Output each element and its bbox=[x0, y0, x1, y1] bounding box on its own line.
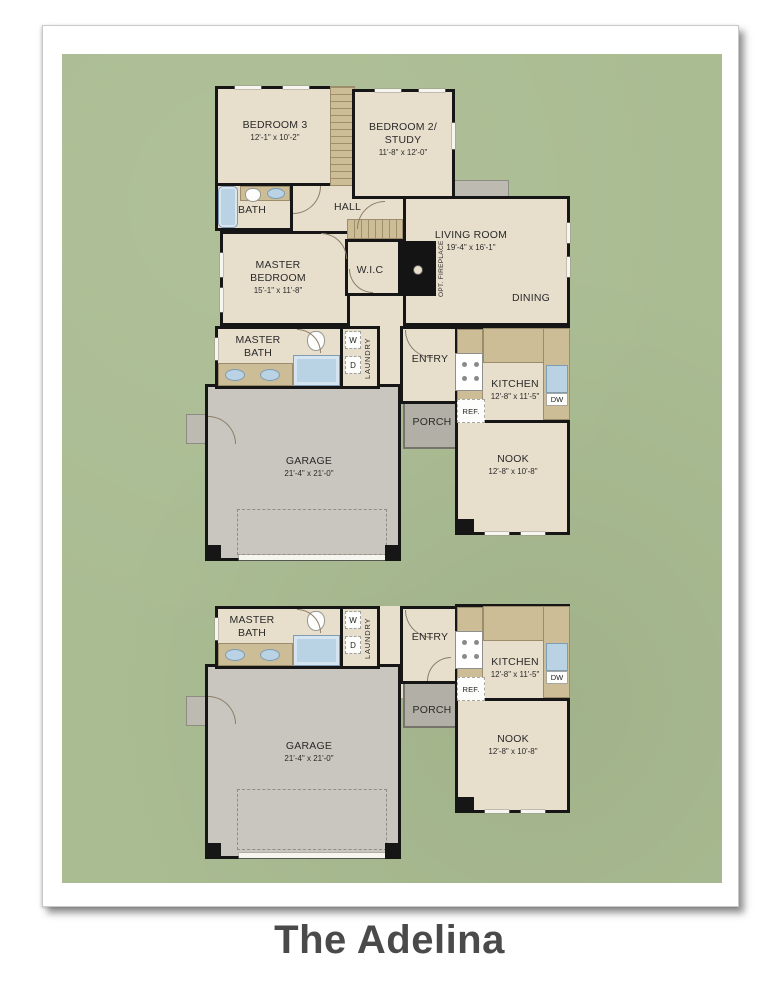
bath-name: BATH bbox=[227, 204, 277, 217]
dryer-icon: D bbox=[345, 636, 361, 654]
side-stoop-2 bbox=[186, 696, 207, 726]
nook-label: NOOK 12'-8" x 10'-8" bbox=[463, 453, 563, 477]
toilet-icon bbox=[245, 188, 261, 202]
hall-label: HALL bbox=[320, 201, 375, 214]
window bbox=[419, 89, 445, 92]
wall-corner bbox=[205, 545, 221, 561]
bedroom2-name2: STUDY bbox=[353, 134, 453, 147]
shower-icon bbox=[293, 355, 340, 386]
site-background: DW REF. W D bbox=[62, 54, 722, 883]
kitchen-name: KITCHEN bbox=[465, 378, 565, 391]
bedroom2-dims: 11'-8" x 12'-0" bbox=[353, 148, 453, 158]
porch-label-2: PORCH bbox=[405, 704, 459, 717]
kitchen-name: KITCHEN bbox=[465, 656, 565, 669]
fireplace-label: OPT. FIREPLACE bbox=[438, 233, 445, 305]
window bbox=[485, 810, 509, 813]
sink-icon bbox=[260, 649, 280, 661]
refrigerator-icon: REF. bbox=[457, 399, 485, 423]
nook-label-2: NOOK 12'-8" x 10'-8" bbox=[463, 733, 563, 757]
garage-door-opening-2 bbox=[239, 853, 385, 858]
window bbox=[215, 338, 218, 360]
wall-corner bbox=[458, 797, 474, 813]
wall-corner bbox=[385, 843, 401, 859]
bedroom3-dims: 12'-1" x 10'-2" bbox=[225, 133, 325, 143]
window bbox=[220, 253, 223, 277]
wic-label: W.I.C bbox=[350, 264, 390, 277]
floorplan-card: DW REF. W D bbox=[42, 25, 739, 907]
stove-burners bbox=[462, 362, 467, 367]
hall-name: HALL bbox=[320, 201, 375, 214]
dining-name: DINING bbox=[501, 292, 561, 305]
porch-name: PORCH bbox=[405, 416, 459, 429]
master-bath-name2: BATH bbox=[221, 627, 283, 640]
wall-corner bbox=[205, 843, 221, 859]
window bbox=[375, 89, 401, 92]
kitchen-label-2: KITCHEN 12'-8" x 11'-5" bbox=[465, 656, 565, 680]
fireplace-circle bbox=[413, 265, 423, 275]
bedroom3-name: BEDROOM 3 bbox=[225, 119, 325, 132]
window bbox=[220, 288, 223, 312]
garage-name: GARAGE bbox=[259, 455, 359, 468]
shower-icon bbox=[293, 635, 340, 666]
living-name: LIVING ROOM bbox=[421, 229, 521, 242]
window bbox=[567, 223, 570, 243]
wall-corner bbox=[458, 519, 474, 535]
window bbox=[567, 257, 570, 277]
sink-icon bbox=[225, 369, 245, 381]
washer-icon: W bbox=[345, 331, 361, 349]
entry-name: ENTRY bbox=[407, 631, 453, 644]
entry-name: ENTRY bbox=[407, 353, 453, 366]
garage-dims: 21'-4" x 21'-0" bbox=[259, 469, 359, 479]
plan-alternate: DW REF. W D MASTER BATH LA bbox=[205, 601, 570, 861]
garage-door-dashline-2 bbox=[237, 789, 387, 850]
laundry-label: LAUNDRY bbox=[363, 329, 372, 387]
refrigerator-icon: REF. bbox=[457, 677, 485, 701]
wall-corner bbox=[385, 545, 401, 561]
window bbox=[485, 532, 509, 535]
plan-main: DW REF. W D bbox=[205, 83, 570, 563]
master-bath-label: MASTER BATH bbox=[227, 334, 289, 360]
master-bedroom-dims: 15'-1" x 11'-8" bbox=[233, 286, 323, 296]
window bbox=[521, 810, 545, 813]
side-stoop bbox=[186, 414, 207, 444]
wic-name: W.I.C bbox=[350, 264, 390, 277]
sink-icon bbox=[267, 188, 285, 199]
nook-name: NOOK bbox=[463, 453, 563, 466]
living-label: LIVING ROOM 19'-4" x 16'-1" bbox=[421, 229, 521, 253]
entry-label: ENTRY bbox=[407, 353, 453, 366]
porch-name: PORCH bbox=[405, 704, 459, 717]
garage-door-opening bbox=[239, 555, 385, 560]
garage-dims: 21'-4" x 21'-0" bbox=[259, 754, 359, 764]
master-bath-name: MASTER bbox=[221, 614, 283, 627]
living-dims: 19'-4" x 16'-1" bbox=[421, 243, 521, 253]
plan-title: The Adelina bbox=[42, 918, 737, 963]
dryer-icon: D bbox=[345, 356, 361, 374]
washer-icon: W bbox=[345, 611, 361, 629]
garage-label: GARAGE 21'-4" x 21'-0" bbox=[259, 455, 359, 479]
sink-icon bbox=[225, 649, 245, 661]
nook-dims: 12'-8" x 10'-8" bbox=[463, 747, 563, 757]
dining-label: DINING bbox=[501, 292, 561, 305]
window bbox=[215, 618, 218, 640]
garage-door-dashline bbox=[237, 509, 387, 555]
porch-label: PORCH bbox=[405, 416, 459, 429]
kitchen-label: KITCHEN 12'-8" x 11'-5" bbox=[465, 378, 565, 402]
nook-dims: 12'-8" x 10'-8" bbox=[463, 467, 563, 477]
stove-burners bbox=[462, 640, 467, 645]
garage-name: GARAGE bbox=[259, 740, 359, 753]
kitchen-dims: 12'-8" x 11'-5" bbox=[465, 392, 565, 402]
master-bedroom-label: MASTER BEDROOM 15'-1" x 11'-8" bbox=[233, 259, 323, 295]
bedroom3-label: BEDROOM 3 12'-1" x 10'-2" bbox=[225, 119, 325, 143]
rear-stoop bbox=[447, 180, 509, 197]
nook-name: NOOK bbox=[463, 733, 563, 746]
entry-label-2: ENTRY bbox=[407, 631, 453, 644]
master-bath-label-2: MASTER BATH bbox=[221, 614, 283, 640]
garage-label-2: GARAGE 21'-4" x 21'-0" bbox=[259, 740, 359, 764]
master-bath-name2: BATH bbox=[227, 347, 289, 360]
master-bath-name: MASTER bbox=[227, 334, 289, 347]
master-bedroom-name: MASTER bbox=[233, 259, 323, 272]
sink-icon bbox=[260, 369, 280, 381]
window bbox=[521, 532, 545, 535]
master-bedroom-name2: BEDROOM bbox=[233, 272, 323, 285]
window bbox=[283, 86, 309, 89]
kitchen-dims: 12'-8" x 11'-5" bbox=[465, 670, 565, 680]
bath-label: BATH bbox=[227, 204, 277, 217]
room-nook bbox=[455, 420, 570, 535]
laundry-label-2: LAUNDRY bbox=[363, 609, 372, 667]
bedroom2-name: BEDROOM 2/ bbox=[353, 121, 453, 134]
bedroom2-label: BEDROOM 2/ STUDY 11'-8" x 12'-0" bbox=[353, 121, 453, 157]
window bbox=[235, 86, 261, 89]
